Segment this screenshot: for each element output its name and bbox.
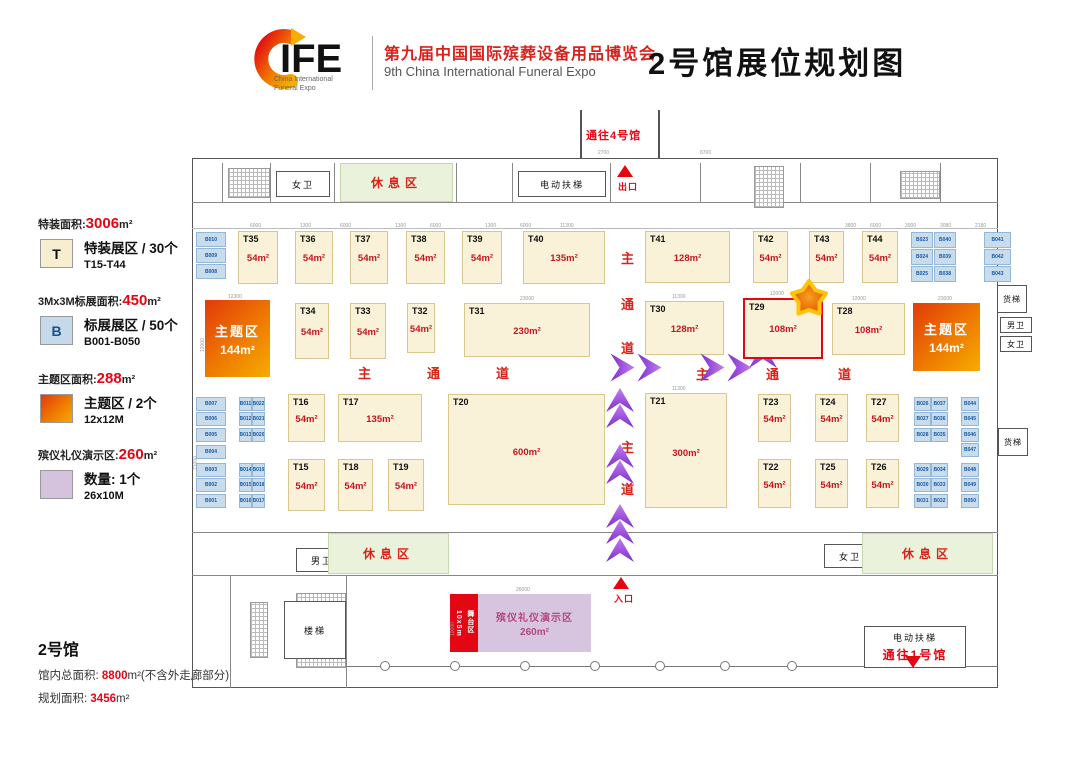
booth-B003[interactable]: B003: [196, 463, 226, 477]
booth-T16[interactable]: T1654m²: [288, 394, 325, 442]
exit-arrow-icon: [617, 165, 633, 177]
booth-B024[interactable]: B024: [911, 249, 933, 265]
booth-id: T28: [837, 306, 853, 316]
booth-B027[interactable]: B027: [914, 412, 931, 426]
booth-B016[interactable]: B016: [239, 494, 252, 508]
theme-area: 144m²: [929, 341, 964, 355]
stage-label: 舞台区: [467, 610, 474, 634]
wall: [456, 163, 457, 202]
route-arrow-up-icon: [605, 404, 635, 435]
column: [590, 661, 600, 671]
booth-id: T30: [650, 304, 666, 314]
dimension-label: 12000: [200, 338, 206, 352]
booth-area: 54m²: [351, 327, 385, 338]
stairs-hatch: [250, 602, 268, 658]
dimension-label: 1300: [485, 223, 496, 229]
booth-id: T26: [871, 462, 887, 472]
wall: [512, 163, 513, 202]
booth-area: 54m²: [863, 253, 897, 264]
booth-T36[interactable]: T3654m²: [295, 231, 333, 284]
booth-T28[interactable]: T28108m²: [832, 303, 905, 355]
column: [787, 661, 797, 671]
booth-B008[interactable]: B008: [196, 264, 226, 279]
facility-女卫: 女卫: [276, 171, 330, 197]
stairs-hatch: [296, 658, 346, 668]
dimension-label: 23000: [520, 296, 534, 302]
booth-B041[interactable]: B041: [984, 232, 1011, 248]
wall: [700, 163, 701, 202]
booth-B049[interactable]: B049: [961, 478, 979, 492]
booth-B031[interactable]: B031: [914, 494, 931, 508]
booth-id: T43: [814, 234, 830, 244]
booth-B012[interactable]: B012: [239, 412, 252, 426]
booth-id: T27: [871, 397, 887, 407]
corridor-char: 主: [358, 363, 371, 382]
booth-area: 54m²: [810, 253, 843, 264]
dimension-label: 12000: [770, 291, 784, 297]
booth-B019[interactable]: B019: [252, 463, 265, 477]
booth-T32[interactable]: T3254m²: [407, 303, 435, 353]
dimension-label: 2180: [975, 223, 986, 229]
booth-B006[interactable]: B006: [196, 412, 226, 426]
booth-id: T32: [412, 306, 428, 316]
booth-B015[interactable]: B015: [239, 478, 252, 492]
column: [655, 661, 665, 671]
booth-B044[interactable]: B044: [961, 397, 979, 411]
facility-女卫: 女卫: [1000, 336, 1032, 352]
booth-id: T17: [343, 397, 359, 407]
booth-B007[interactable]: B007: [196, 397, 226, 411]
booth-B010[interactable]: B010: [196, 232, 226, 247]
facility-货梯: 货梯: [998, 428, 1028, 456]
booth-B014[interactable]: B014: [239, 463, 252, 477]
corridor-char: 道: [496, 363, 509, 382]
booth-id: T35: [243, 234, 259, 244]
booth-B037[interactable]: B037: [931, 397, 948, 411]
stage-size: 10x5m: [455, 610, 462, 637]
wall: [270, 163, 271, 202]
booth-area: 54m²: [351, 253, 387, 264]
booth-T44[interactable]: T4454m²: [862, 231, 898, 283]
booth-id: T19: [393, 462, 409, 472]
floor-plan: 通往4号馆 出口 入口 舞台区 10x5m 殡仪礼仪演示区 260m² 电动扶梯…: [0, 0, 1080, 764]
facility-楼梯: 楼梯: [284, 601, 346, 659]
booth-B038[interactable]: B038: [934, 266, 956, 282]
booth-area: 54m²: [389, 481, 423, 492]
booth-id: T36: [300, 234, 316, 244]
dimension-label: 10000: [450, 622, 456, 636]
theme-area: 144m²: [220, 343, 255, 357]
booth-area: 300m²: [646, 448, 726, 459]
booth-id: T34: [300, 306, 316, 316]
booth-id: T29: [749, 302, 765, 312]
demo-zone-label: 殡仪礼仪演示区: [496, 609, 573, 624]
booth-area: 54m²: [296, 327, 328, 338]
column: [380, 661, 390, 671]
booth-B029[interactable]: B029: [914, 463, 931, 477]
booth-T35[interactable]: T3554m²: [238, 231, 278, 284]
booth-area: 54m²: [816, 480, 847, 491]
facility-休息区: 休息区: [862, 533, 993, 574]
booth-id: T24: [820, 397, 836, 407]
booth-B017[interactable]: B017: [252, 494, 265, 508]
stairs-hatch: [754, 166, 784, 208]
booth-T33[interactable]: T3354m²: [350, 303, 386, 359]
booth-B013[interactable]: B013: [239, 428, 252, 442]
wall: [940, 163, 941, 202]
floorplan-page: { "header": { "logo_text": "IFE", "logo_…: [0, 0, 1080, 764]
booth-id: T16: [293, 397, 309, 407]
booth-id: T15: [293, 462, 309, 472]
corridor-char: 通: [621, 294, 634, 313]
dimension-label: 11300: [672, 386, 686, 392]
booth-area: 128m²: [646, 253, 729, 264]
theme-label: 主题区: [924, 319, 969, 338]
facility-货梯: 货梯: [997, 285, 1027, 313]
booth-B043[interactable]: B043: [984, 266, 1011, 282]
booth-T20[interactable]: T20600m²: [448, 394, 605, 505]
booth-B018[interactable]: B018: [252, 478, 265, 492]
booth-T15[interactable]: T1554m²: [288, 459, 325, 511]
booth-B020[interactable]: B020: [252, 428, 265, 442]
wall: [192, 575, 998, 576]
wall: [192, 202, 998, 203]
booth-B021[interactable]: B021: [252, 412, 265, 426]
booth-area: 54m²: [463, 253, 501, 264]
dimension-label: 2700: [598, 150, 609, 156]
booth-T24[interactable]: T2454m²: [815, 394, 848, 442]
hall4-shaft-wall: [580, 110, 582, 158]
booth-B045[interactable]: B045: [961, 412, 979, 426]
booth-B004[interactable]: B004: [196, 445, 226, 459]
dimension-label: 26000: [516, 587, 530, 593]
booth-id: T39: [467, 234, 483, 244]
dimension-label: 3000: [905, 223, 916, 229]
entrance-arrow-icon: [613, 577, 629, 589]
stairs-hatch: [900, 171, 940, 199]
booth-id: T37: [355, 234, 371, 244]
booth-id: T20: [453, 397, 469, 407]
dimension-label: 1300: [395, 223, 406, 229]
booth-T21[interactable]: T21300m²: [645, 393, 727, 508]
booth-B011[interactable]: B011: [239, 397, 252, 411]
dimension-label: 21000: [193, 456, 199, 470]
booth-area: 54m²: [239, 253, 277, 264]
corridor-char: 通: [427, 363, 440, 382]
booth-id: T18: [343, 462, 359, 472]
booth-id: T25: [820, 462, 836, 472]
to-hall1-arrow-icon: [905, 656, 921, 668]
booth-area: 135m²: [339, 414, 421, 425]
route-arrow-up-icon: [605, 460, 635, 491]
booth-id: T41: [650, 234, 666, 244]
booth-area: 54m²: [754, 253, 787, 264]
booth-T37[interactable]: T3754m²: [350, 231, 388, 284]
escalator-label: 电动扶梯: [893, 631, 937, 644]
facility-休息区: 休息区: [328, 533, 449, 574]
dimension-label: 6000: [520, 223, 531, 229]
wall: [870, 163, 871, 202]
booth-area: 54m²: [867, 414, 898, 425]
hall4-shaft-wall: [658, 110, 660, 158]
booth-T41[interactable]: T41128m²: [645, 231, 730, 283]
theme-zone-1: 主题区144m²: [205, 300, 270, 377]
booth-B023[interactable]: B023: [911, 232, 933, 248]
booth-area: 135m²: [524, 253, 604, 264]
booth-area: 54m²: [407, 253, 444, 264]
dimension-label: 23000: [938, 296, 952, 302]
booth-T17[interactable]: T17135m²: [338, 394, 422, 442]
booth-B036[interactable]: B036: [931, 412, 948, 426]
booth-id: T38: [411, 234, 427, 244]
booth-B028[interactable]: B028: [914, 428, 931, 442]
dimension-label: 12000: [852, 296, 866, 302]
corridor-char: 主: [621, 248, 634, 267]
booth-id: T21: [650, 396, 666, 406]
booth-B001[interactable]: B001: [196, 494, 226, 508]
booth-B046[interactable]: B046: [961, 428, 979, 442]
facility-休息区: 休息区: [340, 163, 453, 202]
booth-area: 230m²: [465, 326, 589, 337]
wall: [610, 163, 611, 202]
booth-B048[interactable]: B048: [961, 463, 979, 477]
corridor-char: 道: [838, 364, 851, 383]
route-arrow-up-icon: [605, 538, 635, 569]
facility-电动扶梯: 电动扶梯: [518, 171, 606, 197]
booth-id: T23: [763, 397, 779, 407]
booth-T40[interactable]: T40135m²: [523, 231, 605, 284]
theme-label: 主题区: [215, 321, 260, 340]
booth-B050[interactable]: B050: [961, 494, 979, 508]
booth-area: 54m²: [816, 414, 847, 425]
booth-T34[interactable]: T3454m²: [295, 303, 329, 359]
booth-area: 54m²: [867, 480, 898, 491]
ceremony-demo-zone: 殡仪礼仪演示区 260m²: [478, 594, 591, 652]
column: [720, 661, 730, 671]
booth-id: T31: [469, 306, 485, 316]
booth-area: 108m²: [745, 324, 821, 335]
booth-area: 54m²: [296, 253, 332, 264]
booth-B033[interactable]: B033: [931, 478, 948, 492]
booth-id: T42: [758, 234, 774, 244]
exit-label: 出口: [618, 180, 638, 193]
stairs-hatch: [228, 168, 270, 198]
entrance-label: 入口: [614, 592, 634, 605]
dimension-label: 6000: [250, 223, 261, 229]
booth-area: 54m²: [339, 481, 372, 492]
wall: [222, 163, 223, 202]
booth-B009[interactable]: B009: [196, 248, 226, 263]
booth-area: 128m²: [646, 324, 723, 335]
booth-area: 54m²: [759, 414, 790, 425]
booth-area: 54m²: [759, 480, 790, 491]
column: [520, 661, 530, 671]
booth-id: T22: [763, 462, 779, 472]
dimension-label: 8700: [700, 150, 711, 156]
booth-area: 108m²: [833, 325, 904, 336]
dimension-label: 11300: [560, 223, 574, 229]
booth-B022[interactable]: B022: [252, 397, 265, 411]
booth-T27[interactable]: T2754m²: [866, 394, 899, 442]
dimension-label: 1300: [300, 223, 311, 229]
booth-id: T40: [528, 234, 544, 244]
booth-T42[interactable]: T4254m²: [753, 231, 788, 283]
booth-area: 54m²: [289, 481, 324, 492]
dimension-label: 3800: [845, 223, 856, 229]
column: [450, 661, 460, 671]
dimension-label: 6000: [340, 223, 351, 229]
highlight-star-icon: [786, 276, 832, 322]
booth-B026[interactable]: B026: [914, 397, 931, 411]
booth-T18[interactable]: T1854m²: [338, 459, 373, 511]
booth-B034[interactable]: B034: [931, 463, 948, 477]
booth-B002[interactable]: B002: [196, 478, 226, 492]
dimension-label: 11300: [672, 294, 686, 300]
wall: [230, 575, 231, 688]
booth-T31[interactable]: T31230m²: [464, 303, 590, 357]
booth-B032[interactable]: B032: [931, 494, 948, 508]
booth-T25[interactable]: T2554m²: [815, 459, 848, 508]
dimension-label: 6000: [870, 223, 881, 229]
to-hall4-label: 通往4号馆: [586, 127, 641, 143]
booth-T23[interactable]: T2354m²: [758, 394, 791, 442]
demo-zone-area: 260m²: [520, 627, 549, 638]
booth-area: 54m²: [289, 414, 324, 425]
dimension-label: 3080: [940, 223, 951, 229]
booth-B040[interactable]: B040: [934, 232, 956, 248]
booth-T38[interactable]: T3854m²: [406, 231, 445, 284]
theme-zone-2: 主题区144m²: [913, 303, 980, 371]
booth-B030[interactable]: B030: [914, 478, 931, 492]
facility-男卫: 男卫: [1000, 317, 1032, 333]
booth-T39[interactable]: T3954m²: [462, 231, 502, 284]
dimension-label: 6000: [430, 223, 441, 229]
booth-area: 54m²: [408, 324, 434, 335]
booth-area: 600m²: [449, 447, 604, 458]
booth-B025[interactable]: B025: [911, 266, 933, 282]
wall: [800, 163, 801, 202]
booth-B047[interactable]: B047: [961, 443, 979, 457]
dimension-label: 12300: [228, 294, 242, 300]
booth-B005[interactable]: B005: [196, 428, 226, 442]
booth-T19[interactable]: T1954m²: [388, 459, 424, 511]
booth-T26[interactable]: T2654m²: [866, 459, 899, 508]
booth-id: T44: [867, 234, 883, 244]
booth-B035[interactable]: B035: [931, 428, 948, 442]
booth-B042[interactable]: B042: [984, 249, 1011, 265]
wall: [346, 575, 347, 688]
booth-T22[interactable]: T2254m²: [758, 459, 791, 508]
booth-T30[interactable]: T30128m²: [645, 301, 724, 355]
booth-B039[interactable]: B039: [934, 249, 956, 265]
wall: [334, 163, 335, 202]
route-arrow-right-icon: [631, 353, 662, 383]
booth-id: T33: [355, 306, 371, 316]
